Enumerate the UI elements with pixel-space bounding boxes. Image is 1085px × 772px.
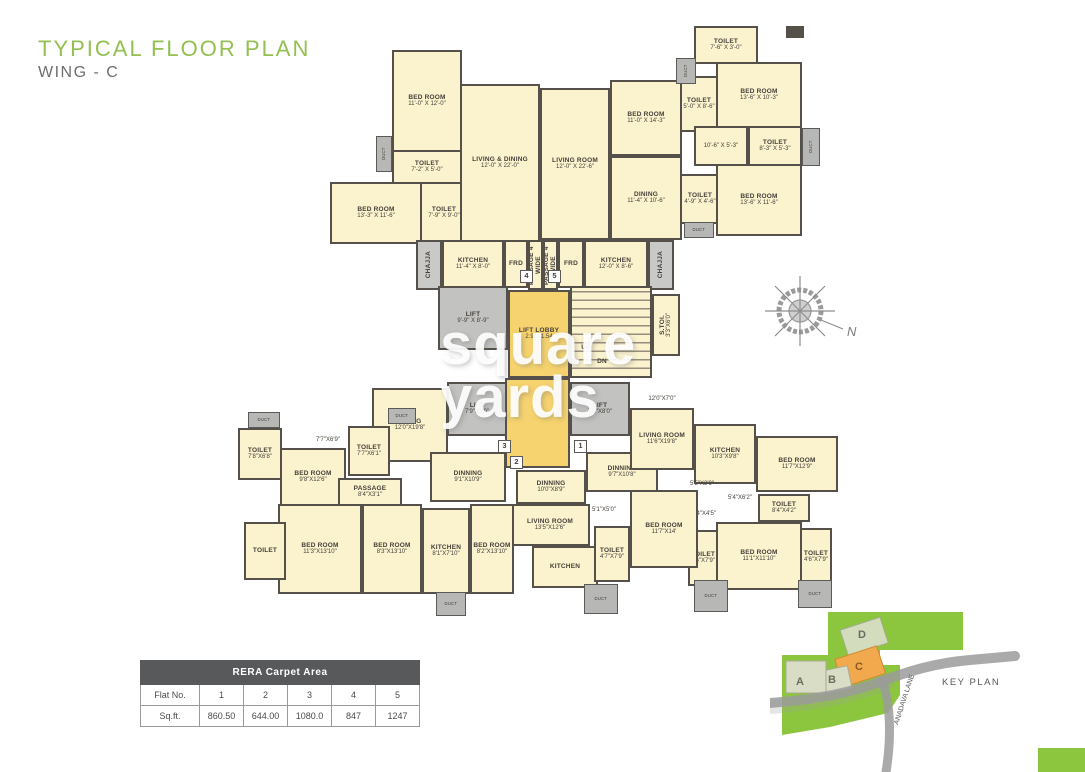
duct: DUCT — [676, 58, 696, 84]
stair-dn-label: DN — [592, 356, 612, 368]
duct: DUCT — [584, 584, 618, 614]
rera-carpet-area-table: RERA Carpet Area Flat No.12345Sq.ft.860.… — [140, 660, 420, 727]
toilet: TOILET7'-2" X 5'-0" — [392, 150, 462, 184]
living-room: LIVING ROOM12'-0" X 22'-6" — [540, 88, 610, 240]
bedroom: BED ROOM11'1"X11'10" — [716, 522, 802, 590]
bedroom: BED ROOM13'-3" X 11'-6" — [330, 182, 422, 244]
flat-number-4: 4 — [520, 270, 533, 283]
toilet: TOILET7'8"X6'8" — [238, 428, 282, 480]
bedroom: BED ROOM11'7"X14' — [630, 490, 698, 568]
bedroom: BED ROOM9'8"X12'6" — [280, 448, 346, 506]
row-header-cell: Flat No. — [141, 685, 200, 706]
building-label-c: C — [855, 661, 863, 673]
value-cell: 5 — [376, 685, 420, 706]
stair-up-label: UP — [576, 342, 596, 354]
duct: DUCT — [376, 136, 392, 172]
value-cell: 644.00 — [244, 706, 288, 727]
compass-rose: N — [755, 268, 865, 358]
lift: LIFT9'-9" X 8'-9" — [438, 286, 508, 350]
dim-label: 5'1"X5'0" — [584, 504, 624, 517]
bedroom: BED ROOM11'3"X13'10" — [278, 504, 362, 594]
toilet: TOILET4'6"X7'9" — [800, 528, 832, 586]
bedroom: BED ROOM11'7"X12'9" — [756, 436, 838, 492]
toilet: TOILET — [244, 522, 286, 580]
building-label-a: A — [796, 676, 804, 688]
value-cell: 1 — [200, 685, 244, 706]
table-body: Flat No.12345Sq.ft.860.50644.001080.0847… — [141, 685, 420, 727]
value-cell: 847 — [332, 706, 376, 727]
toilet: TOILET7'7"X6'1" — [348, 426, 390, 476]
kitchen: KITCHEN — [532, 546, 598, 588]
toilet: TOILET8'-3" X 5'-3" — [748, 126, 802, 166]
dim-label: 7'7"X6'9" — [306, 434, 350, 447]
value-cell: 1247 — [376, 706, 420, 727]
lift-lobby — [505, 378, 570, 468]
site-patch — [1038, 748, 1085, 772]
key-plan: D C B A ANADAVA LANE KEY PLAN — [770, 595, 1085, 772]
balcony: 12'0"X7'0" — [630, 392, 694, 406]
value-cell: 4 — [332, 685, 376, 706]
lift: LIFT7'9"X8'0" — [447, 382, 507, 436]
duct: DUCT — [684, 222, 714, 238]
bedroom: BED ROOM13'-6" X 11'-6" — [716, 164, 802, 236]
building-label-b: B — [828, 674, 836, 686]
toilet: TOILET8'4"X4'2" — [758, 494, 810, 522]
servant-toilet: S.TOI.3'3"X6'0" — [652, 294, 680, 356]
bedroom: BED ROOM11'-0" X 12'-0" — [392, 50, 462, 152]
dining: DINING11'-4" X 10'-6" — [610, 156, 682, 240]
toilet: TOILET5'-0" X 8'-6" — [680, 76, 718, 132]
fridge: FRD — [558, 240, 584, 288]
table-row: Sq.ft.860.50644.001080.08471247 — [141, 706, 420, 727]
bedroom: BED ROOM8'2"X13'10" — [470, 504, 514, 594]
toilet: TOILET7'-6" X 3'-0" — [694, 26, 758, 64]
dinning: DINNING10'0"X8'9" — [516, 470, 586, 504]
passage: PASSAGE8'4"X3'1" — [338, 478, 402, 506]
duct: DUCT — [248, 412, 280, 428]
bedroom: BED ROOM8'3"X13'10" — [362, 504, 422, 594]
floor-plan-page: TYPICAL FLOOR PLAN WING - C DUCTBED ROOM… — [0, 0, 1085, 772]
flat-number-5: 5 — [548, 270, 561, 283]
balcony: 10'-6" X 5'-3" — [694, 126, 748, 166]
flat-number-2: 2 — [510, 456, 523, 469]
value-cell: 860.50 — [200, 706, 244, 727]
table-row: Flat No.12345 — [141, 685, 420, 706]
dinning: DINNING9'1"X10'9" — [430, 452, 506, 502]
table-title: RERA Carpet Area — [141, 661, 420, 685]
lift-lobby: LIFT LOBBY2.91X1.54 — [508, 290, 570, 378]
row-header-cell: Sq.ft. — [141, 706, 200, 727]
living-room: LIVING ROOM13'5"X12'6" — [510, 504, 590, 546]
value-cell: 3 — [288, 685, 332, 706]
kitchen: KITCHEN11'-4" X 8'-0" — [442, 240, 504, 288]
kitchen: KITCHEN8'1"X7'10" — [422, 508, 470, 594]
key-plan-label: KEY PLAN — [942, 677, 1000, 688]
duct: DUCT — [388, 408, 416, 424]
kitchen: KITCHEN12'-0" X 8'-6" — [584, 240, 648, 288]
duct: DUCT — [436, 592, 466, 616]
chajja: CHAJJA — [416, 240, 442, 290]
north-label: N — [847, 324, 857, 339]
toilet: TOILET4'-9" X 4'-6" — [680, 174, 720, 224]
bedroom: BED ROOM13'-6" X 10'-3" — [716, 62, 802, 128]
column — [786, 26, 804, 38]
building-label-d: D — [858, 629, 866, 641]
kitchen: KITCHEN10'3"X9'8" — [694, 424, 756, 484]
value-cell: 1080.0 — [288, 706, 332, 727]
chajja: CHAJJA — [648, 240, 674, 290]
value-cell: 2 — [244, 685, 288, 706]
lift: LIFT7'6"X8'0" — [570, 382, 630, 436]
living-room: LIVING ROOM11'6"X19'8" — [630, 408, 694, 470]
toilet: TOILET4'7"X7'9" — [594, 526, 630, 582]
living-dining: LIVING & DINING12'-0" X 22'-0" — [460, 84, 540, 242]
duct: DUCT — [694, 580, 728, 612]
bedroom: BED ROOM11'-0" X 14'-3" — [610, 80, 682, 156]
duct: DUCT — [802, 128, 820, 166]
